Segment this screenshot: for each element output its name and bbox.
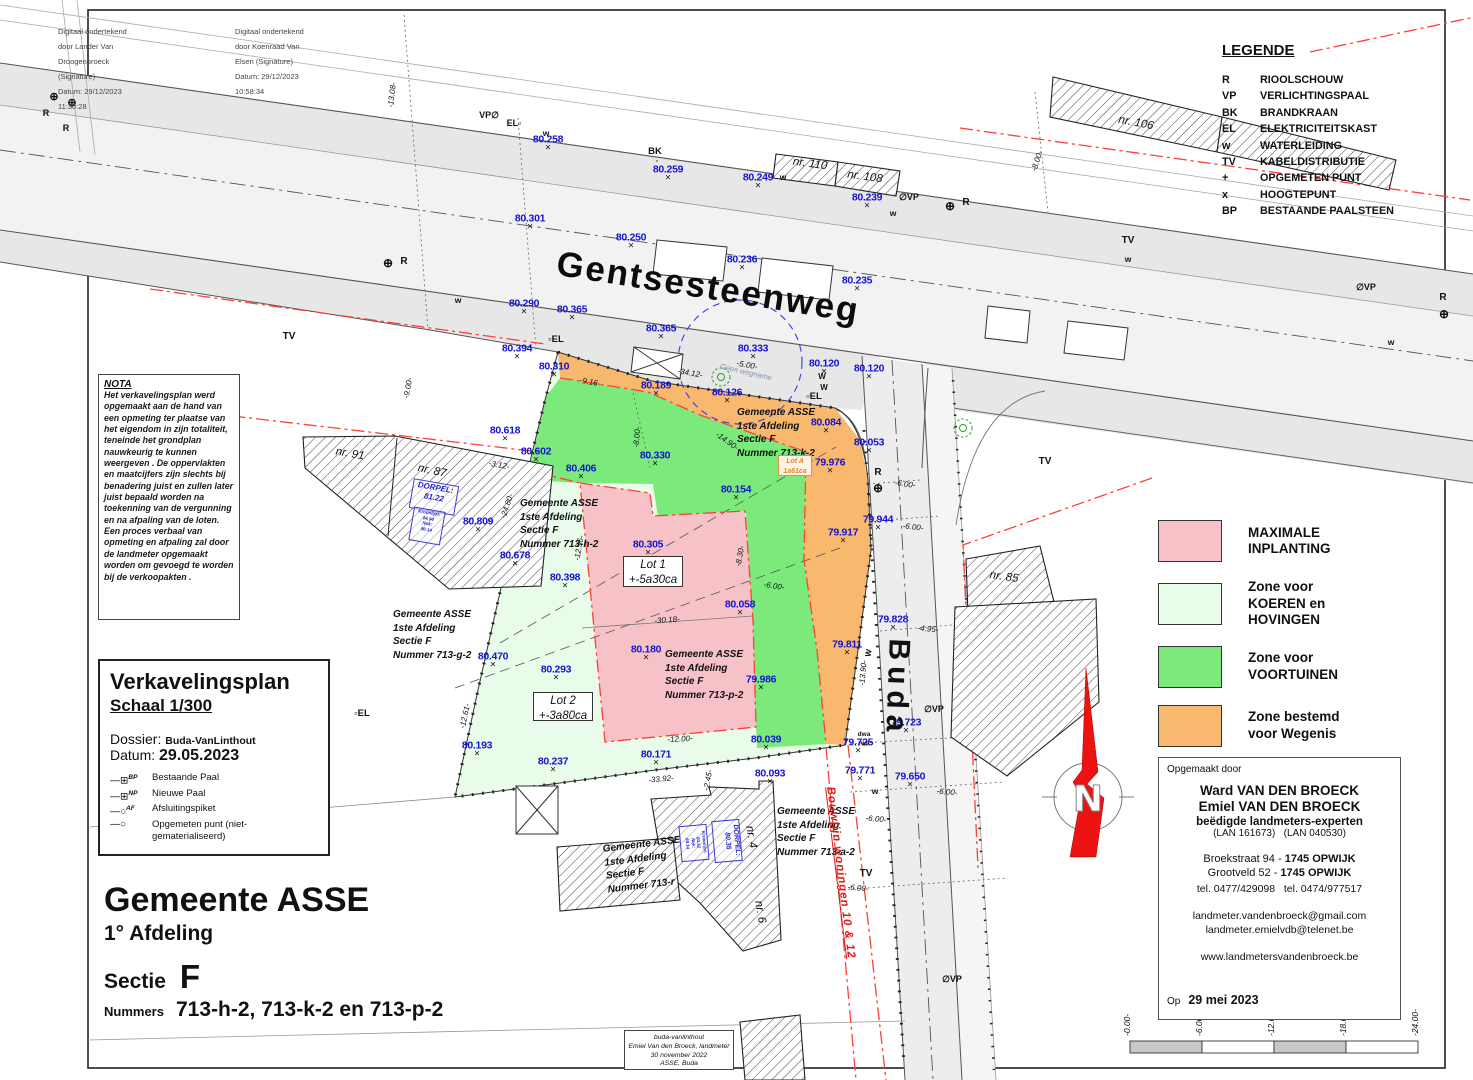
- map-symbol-EL: ▫EL: [354, 709, 370, 719]
- lightgreen-swatch: [1158, 583, 1222, 625]
- zone-legend-line: Zone voor: [1248, 579, 1325, 596]
- plan-scale: Schaal 1/300: [110, 696, 318, 716]
- legend-code: BK: [1222, 105, 1260, 121]
- legend-item: xHOOGTEPUNT: [1222, 187, 1458, 203]
- verkavelingsplan-canvas: N 80.258×80.259×80.249×80.239×80.301×80.…: [0, 0, 1473, 1080]
- zone-legend-label: MAXIMALEINPLANTING: [1248, 525, 1331, 558]
- elevation-point: 79.828×: [878, 614, 908, 633]
- elevation-point: 80.120×: [854, 363, 884, 382]
- height-x-icon: ×: [852, 203, 882, 211]
- building-number-label: nr. 87: [417, 462, 448, 480]
- map-symbol-EL: ▫EL: [548, 335, 564, 345]
- elevation-point: 80.305×: [633, 539, 663, 558]
- legend-label: VERLICHTINGSPAAL: [1260, 88, 1369, 104]
- elevation-point: 79.811×: [832, 639, 862, 658]
- elevation-point: 80.239×: [852, 192, 882, 211]
- date-value: 29 mei 2023: [1188, 993, 1258, 1007]
- signature-line: Datum: 29/12/2023: [58, 84, 208, 99]
- elevation-point: 80.406×: [566, 463, 596, 482]
- legend-item: +OPGEMETEN PUNT: [1222, 170, 1458, 186]
- map-symbol-VP: ∅VP: [942, 974, 962, 984]
- zone-legend-line: VOORTUINEN: [1248, 667, 1338, 684]
- map-symbol-w: w: [455, 295, 462, 305]
- map-symbol-w: w: [872, 786, 879, 796]
- parcel-line: Sectie F: [737, 433, 815, 447]
- zone-legend-label: Zone bestemdvoor Wegenis: [1248, 709, 1340, 742]
- signature-line: 11:30:28: [58, 99, 208, 114]
- height-x-icon: ×: [746, 685, 776, 693]
- map-symbol-R: R: [43, 108, 50, 118]
- nota-box: NOTA Het verkavelingsplan werd opgemaakt…: [98, 374, 240, 620]
- dimension-label: -9.00-: [402, 377, 414, 399]
- surveyor-lan-numbers: (LAN 161673) (LAN 040530): [1167, 828, 1392, 839]
- height-x-icon: ×: [895, 782, 925, 790]
- dimension-label: -13.90-: [857, 660, 868, 686]
- signature-line: (Signature): [58, 69, 208, 84]
- nummers-row: Nummers713-h-2, 713-k-2 en 713-p-2: [104, 998, 604, 1022]
- height-x-icon: ×: [725, 610, 755, 618]
- lotA-area: 1a61ca: [779, 467, 811, 477]
- stamp-line: buda-vanlinthout: [625, 1034, 733, 1043]
- elevation-point: 80.154×: [721, 484, 751, 503]
- parcel-label: Gemeente ASSE1ste AfdelingSectie FNummer…: [393, 608, 471, 662]
- lot2-name: Lot 2: [534, 694, 592, 709]
- dorpel-annotation-box: DORPEL:80.35: [711, 819, 743, 863]
- elevation-point: 80.249×: [743, 172, 773, 191]
- dimension-label: -12.61-: [458, 703, 472, 730]
- parcel-line: 1ste Afdeling: [393, 622, 471, 636]
- legend-code: w: [1222, 138, 1260, 154]
- lot2-area: +-3a80ca: [534, 709, 592, 724]
- zone-legend-line: MAXIMALE: [1248, 525, 1331, 542]
- surveyor-box: Opgemaakt door Ward VAN DEN BROECK Emiel…: [1158, 757, 1401, 1020]
- plan-info-box: Verkavelingsplan Schaal 1/300 Dossier: B…: [98, 659, 330, 856]
- dimension-label: -4.95-: [917, 624, 939, 635]
- dimension-label: -13.08-: [386, 82, 398, 108]
- dorpel-annotation-box: Kroonlijst:84.52Nok:89.14: [678, 824, 709, 862]
- scalebar-tick-label: -0.00-: [1122, 1014, 1132, 1036]
- nummers-label: Nummers: [104, 1004, 164, 1019]
- height-x-icon: ×: [878, 625, 908, 633]
- map-symbol-mark: ⊕: [1439, 309, 1449, 319]
- parcel-line: Gemeente ASSE: [393, 608, 471, 622]
- legend-label: KABELDISTRIBUTIE: [1260, 154, 1365, 170]
- zone-legend-item: MAXIMALEINPLANTING: [1158, 520, 1340, 562]
- map-symbol-BK: BK: [648, 147, 662, 157]
- nummers-value: 713-h-2, 713-k-2 en 713-p-2: [176, 998, 443, 1021]
- building-number-label: nr. 4: [743, 825, 759, 849]
- height-x-icon: ×: [712, 398, 742, 406]
- dimension-label: -6.00-: [865, 814, 887, 825]
- parcel-line: 1ste Afdeling: [520, 511, 598, 525]
- street-label-buda: Buda: [878, 638, 915, 738]
- map-symbol-w: w: [1125, 254, 1132, 264]
- map-symbol-W: W: [818, 372, 826, 382]
- signature-line: door Koenraad Van: [235, 39, 385, 54]
- map-symbol-R: R: [874, 468, 881, 478]
- dimension-label: -2.45-: [702, 769, 714, 791]
- height-x-icon: ×: [832, 650, 862, 658]
- parcel-line: 1ste Afdeling: [665, 662, 743, 676]
- parcel-line: Gemeente ASSE: [520, 497, 598, 511]
- parcel-label: Gemeente ASSE1ste AfdelingSectie FNummer…: [665, 648, 743, 702]
- datum-value: 29.05.2023: [159, 747, 239, 764]
- dimension-label: -33.92-: [648, 773, 674, 784]
- digital-signature-right: Digitaal ondertekenddoor Koenraad VanEls…: [235, 24, 385, 99]
- datum-label: Datum:: [110, 747, 155, 763]
- elevation-point: 79.771×: [845, 765, 875, 784]
- addr2-city: 1745 OPWIJK: [1280, 867, 1351, 879]
- dimension-label: -6.00-: [936, 787, 958, 798]
- height-x-icon: ×: [641, 391, 671, 399]
- plan-symbol-label: Nieuwe Paal: [152, 788, 302, 804]
- lotA-label: Lot A 1a61ca: [778, 455, 812, 476]
- dimension-label: -9.16-: [579, 376, 601, 388]
- map-symbol-w: w: [890, 208, 897, 218]
- map-symbol-TV: TV: [283, 332, 296, 342]
- dimension-label: -6.00-: [847, 883, 869, 894]
- parcel-line: Sectie F: [520, 524, 598, 538]
- legend-code: x: [1222, 187, 1260, 203]
- height-x-icon: ×: [463, 527, 493, 535]
- legend-item: RRIOOLSCHOUW: [1222, 72, 1458, 88]
- parcel-line: Sectie F: [665, 675, 743, 689]
- plan-symbol-row: —○AFAfsluitingspiket: [110, 803, 318, 819]
- elevation-point: 80.809×: [463, 516, 493, 535]
- map-symbol-W: W: [820, 383, 828, 393]
- addr2-street: Grootveld 52 -: [1208, 867, 1281, 879]
- map-symbol-mark: ▫: [656, 157, 658, 167]
- map-symbol-EL: EL▫: [507, 118, 522, 128]
- plan-symbol-row: —⊞BPBestaande Paal: [110, 772, 318, 788]
- signature-line: 10:58:34: [235, 84, 385, 99]
- legend-title: LEGENDE: [1222, 42, 1458, 59]
- stamp-line: 30 november 2022: [625, 1052, 733, 1061]
- legend-code: BP: [1222, 203, 1260, 219]
- dimension-label: -6.00-: [763, 580, 785, 592]
- elevation-point: 80.250×: [616, 232, 646, 251]
- sectie-label: Sectie: [104, 970, 166, 993]
- height-x-icon: ×: [743, 183, 773, 191]
- dimension-label: -24.80-: [499, 493, 515, 520]
- map-symbol-VP: ∅VP: [1356, 282, 1376, 292]
- dimension-label: -8.30-: [734, 545, 746, 567]
- parcel-line: 1ste Afdeling: [737, 420, 815, 434]
- elevation-point: 80.058×: [725, 599, 755, 618]
- legend-item: BKBRANDKRAAN: [1222, 105, 1458, 121]
- elevation-point: 80.189×: [641, 380, 671, 399]
- building-number-label: nr. 110: [792, 156, 828, 173]
- sectie-row: SectieF: [104, 958, 604, 996]
- height-x-icon: ×: [854, 448, 884, 456]
- map-symbol-w: w: [543, 128, 550, 138]
- surveyor-email-2: landmeter.emielvdb@telenet.be: [1167, 923, 1392, 937]
- map-symbol-mark: ⊕: [945, 201, 955, 211]
- map-symbol-w: w: [780, 172, 787, 182]
- building-number-label: nr. 108: [847, 169, 884, 186]
- legend-label: BESTAANDE PAALSTEEN: [1260, 203, 1394, 219]
- height-x-icon: ×: [539, 372, 569, 380]
- height-x-icon: ×: [721, 495, 751, 503]
- plan-symbol-label: Afsluitingspiket: [152, 803, 302, 819]
- map-symbol-R: R: [1439, 293, 1446, 303]
- elevation-point: 80.365×: [646, 323, 676, 342]
- title-block: Gemeente ASSE 1° Afdeling SectieF Nummer…: [104, 880, 604, 1022]
- scalebar-tick-label: -24.00-: [1410, 1009, 1420, 1036]
- legend-item: ELELEKTRICITEITSKAST: [1222, 121, 1458, 137]
- signature-line: Digitaal ondertekend: [58, 24, 208, 39]
- plan-symbol-legend: —⊞BPBestaande Paal—⊞NPNieuwe Paal—○AFAfs…: [110, 772, 318, 843]
- legend-label: WATERLEIDING: [1260, 138, 1342, 154]
- lotA-name: Lot A: [779, 457, 811, 467]
- signature-line: Digitaal ondertekend: [235, 24, 385, 39]
- parcel-line: 1ste Afdeling: [777, 819, 855, 833]
- map-symbol-rwa: rwa: [858, 739, 869, 749]
- zone-legend-label: Zone voorKOEREN enHOVINGEN: [1248, 579, 1325, 629]
- map-symbol-VP: VP∅: [479, 110, 499, 120]
- elevation-point: 80.126×: [712, 387, 742, 406]
- map-symbol-w: w: [1388, 337, 1395, 347]
- zone-legend-label: Zone voorVOORTUINEN: [1248, 650, 1338, 683]
- elevation-point: 80.237×: [538, 756, 568, 775]
- plan-symbol-row: —○Opgemeten punt (niet-gematerialiseerd): [110, 819, 318, 843]
- legend-item: BPBESTAANDE PAALSTEEN: [1222, 203, 1458, 219]
- elevation-point: 80.678×: [500, 550, 530, 569]
- height-x-icon: ×: [490, 436, 520, 444]
- digital-signature-left: Digitaal ondertekenddoor Lander VanDroog…: [58, 24, 208, 114]
- height-x-icon: ×: [521, 457, 551, 465]
- height-x-icon: ×: [640, 461, 670, 469]
- sectie-value: F: [180, 958, 200, 995]
- pink-swatch: [1158, 520, 1222, 562]
- legend-item: wWATERLEIDING: [1222, 138, 1458, 154]
- lot2-label: Lot 2 +-3a80ca: [533, 692, 593, 721]
- dossier-value: Buda-VanLinthout: [165, 735, 255, 747]
- legend-label: ELEKTRICITEITSKAST: [1260, 121, 1377, 137]
- height-x-icon: ×: [641, 760, 671, 768]
- map-symbol-TV: TV: [1039, 457, 1052, 467]
- surveyor-name-2: Emiel VAN DEN BROECK: [1167, 799, 1392, 815]
- dimension-label: -8.00-: [632, 426, 643, 448]
- legend-box: LEGENDE RRIOOLSCHOUWVPVERLICHTINGSPAALBK…: [1222, 42, 1458, 220]
- legend-item: VPVERLICHTINGSPAAL: [1222, 88, 1458, 104]
- elevation-point: 80.293×: [541, 664, 571, 683]
- plan-symbol-row: —⊞NPNieuwe Paal: [110, 788, 318, 804]
- parcel-line: Sectie F: [777, 832, 855, 846]
- height-x-icon: ×: [815, 468, 845, 476]
- map-symbol-W: W: [863, 648, 874, 657]
- parcel-line: Gemeente ASSE: [777, 805, 855, 819]
- elevation-point: 80.310×: [539, 361, 569, 380]
- zone-legend-item: Zone voorVOORTUINEN: [1158, 646, 1340, 688]
- map-symbol-VP: ∅VP: [899, 192, 919, 202]
- datum-row: Datum: 29.05.2023: [110, 747, 318, 765]
- height-x-icon: ×: [811, 428, 841, 436]
- parcel-line: Gemeente ASSE: [737, 406, 815, 420]
- building-number-label: nr. 85: [989, 569, 1019, 585]
- zones-legend: MAXIMALEINPLANTINGZone voorKOEREN enHOVI…: [1158, 520, 1340, 764]
- symbol-np-icon: —⊞NP: [110, 788, 152, 804]
- symbol-point-icon: —○: [110, 819, 152, 843]
- surveyor-website: www.landmetersvandenbroeck.be: [1167, 951, 1392, 963]
- signature-line: door Lander Van: [58, 39, 208, 54]
- map-symbol-TV: TV: [860, 869, 873, 879]
- nota-body: Het verkavelingsplan werd opgemaakt aan …: [104, 390, 234, 583]
- signature-line: Droogenbroeck: [58, 54, 208, 69]
- elevation-point: 80.398×: [550, 572, 580, 591]
- dimension-label: -6.00-: [894, 478, 916, 490]
- height-x-icon: ×: [646, 334, 676, 342]
- elevation-point: 80.301×: [515, 213, 545, 232]
- parcel-line: Nummer 713-p-2: [665, 689, 743, 703]
- stamp-box: buda-vanlinthoutEmiel Van den Broeck, la…: [624, 1030, 734, 1070]
- building-number-label: nr. 106: [1117, 114, 1154, 133]
- height-x-icon: ×: [631, 655, 661, 663]
- map-symbol-TV: TV: [1122, 236, 1135, 246]
- symbol-bp-icon: —⊞BP: [110, 772, 152, 788]
- signature-line: Elsen (Signature): [235, 54, 385, 69]
- lot1-area: +-5a30ca: [624, 573, 682, 588]
- zone-legend-item: Zone bestemdvoor Wegenis: [1158, 705, 1340, 747]
- height-x-icon: ×: [515, 224, 545, 232]
- parcel-line: Nummer 713-g-2: [393, 649, 471, 663]
- legend-item: TVKABELDISTRIBUTIE: [1222, 154, 1458, 170]
- height-x-icon: ×: [863, 525, 893, 533]
- elevation-point: 80.171×: [641, 749, 671, 768]
- elevation-point: 80.084×: [811, 417, 841, 436]
- dimension-label: -34.12-: [677, 366, 704, 379]
- dossier-label: Dossier:: [110, 731, 161, 747]
- addr1-city: 1745 OPWIJK: [1285, 853, 1356, 865]
- elevation-point: 79.917×: [828, 527, 858, 546]
- elevation-point: 80.470×: [478, 651, 508, 670]
- elevation-point: 79.944×: [863, 514, 893, 533]
- legend-label: RIOOLSCHOUW: [1260, 72, 1343, 88]
- surveyor-phones: tel. 0477/429098 tel. 0474/977517: [1167, 883, 1392, 895]
- legend-code: R: [1222, 72, 1260, 88]
- height-x-icon: ×: [616, 243, 646, 251]
- stamp-line: ASSE, Buda: [625, 1060, 733, 1069]
- dimension-label: -3.12-: [488, 459, 510, 471]
- elevation-point: 80.365×: [557, 304, 587, 323]
- height-x-icon: ×: [557, 315, 587, 323]
- map-symbol-mark: ⊕: [873, 483, 883, 493]
- parcel-line: Gemeente ASSE: [665, 648, 743, 662]
- map-symbol-EL: ▫EL: [806, 392, 822, 402]
- dorpel-annotation-box: Kroonlijst:84.94Nok:90.14: [408, 506, 445, 545]
- green-swatch: [1158, 646, 1222, 688]
- parcel-label: Gemeente ASSE1ste AfdelingSectie FNummer…: [602, 833, 686, 896]
- map-symbol-VP: ∅VP: [924, 704, 944, 714]
- stamp-line: Emiel Van den Broeck, landmeter: [625, 1043, 733, 1052]
- height-x-icon: ×: [845, 776, 875, 784]
- orange-swatch: [1158, 705, 1222, 747]
- height-x-icon: ×: [533, 145, 563, 153]
- gemeente-title: Gemeente ASSE: [104, 880, 604, 920]
- height-x-icon: ×: [502, 354, 532, 362]
- height-x-icon: ×: [500, 561, 530, 569]
- map-symbol-R: R: [63, 123, 70, 133]
- plan-title: Verkavelingsplan: [110, 669, 318, 695]
- legend-label: BRANDKRAAN: [1260, 105, 1338, 121]
- building-number-label: nr. 91: [335, 446, 366, 463]
- dimension-label: -12.00-: [667, 734, 693, 744]
- map-symbol-R: R: [962, 198, 969, 208]
- surveyor-name-1: Ward VAN DEN BROECK: [1167, 783, 1392, 799]
- elevation-point: 80.236×: [727, 254, 757, 273]
- surveyor-email-1: landmeter.vandenbroeck@gmail.com: [1167, 909, 1392, 923]
- zone-legend-line: HOVINGEN: [1248, 612, 1325, 629]
- height-x-icon: ×: [566, 474, 596, 482]
- zone-legend-line: voor Wegenis: [1248, 726, 1340, 743]
- parcel-label: Gemeente ASSE1ste AfdelingSectie FNummer…: [737, 406, 815, 460]
- legend-items: RRIOOLSCHOUWVPVERLICHTINGSPAALBKBRANDKRA…: [1222, 72, 1458, 220]
- dimension-label: -30.18-: [654, 615, 680, 626]
- elevation-point: 80.193×: [462, 740, 492, 759]
- afdeling-title: 1° Afdeling: [104, 920, 604, 947]
- plan-symbol-label: Opgemeten punt (niet-gematerialiseerd): [152, 819, 302, 843]
- elevation-point: 80.039×: [751, 734, 781, 753]
- surveyor-date-row: Op29 mei 2023: [1167, 993, 1259, 1007]
- height-x-icon: ×: [751, 745, 781, 753]
- legend-code: TV: [1222, 154, 1260, 170]
- map-symbol-mark: ⊕: [383, 258, 393, 268]
- height-x-icon: ×: [462, 751, 492, 759]
- legend-label: OPGEMETEN PUNT: [1260, 170, 1361, 186]
- surveyor-title: beëdigde landmeters-experten: [1167, 816, 1392, 828]
- elevation-point: 80.053×: [854, 437, 884, 456]
- surveyor-address-1: Broekstraat 94 - 1745 OPWIJK: [1167, 853, 1392, 867]
- dimension-label: -6.00-: [902, 521, 924, 532]
- elevation-point: 80.330×: [640, 450, 670, 469]
- surveyor-heading: Opgemaakt door: [1167, 764, 1392, 775]
- height-x-icon: ×: [653, 175, 683, 183]
- elevation-point: 80.180×: [631, 644, 661, 663]
- height-x-icon: ×: [538, 767, 568, 775]
- zone-legend-line: INPLANTING: [1248, 541, 1331, 558]
- height-x-icon: ×: [854, 374, 884, 382]
- elevation-point: 79.986×: [746, 674, 776, 693]
- signature-line: Datum: 29/12/2023: [235, 69, 385, 84]
- zone-legend-item: Zone voorKOEREN enHOVINGEN: [1158, 579, 1340, 629]
- elevation-point: 80.394×: [502, 343, 532, 362]
- parcel-line: Nummer 713-h-2: [520, 538, 598, 552]
- nota-title: NOTA: [104, 379, 234, 390]
- dimension-label: -8.00-: [1029, 150, 1044, 173]
- elevation-point: 80.290×: [509, 298, 539, 317]
- lot1-label: Lot 1 +-5a30ca: [623, 556, 683, 587]
- plan-symbol-label: Bestaande Paal: [152, 772, 302, 788]
- parcel-label: Gemeente ASSE1ste AfdelingSectie FNummer…: [520, 497, 598, 551]
- height-x-icon: ×: [541, 675, 571, 683]
- zone-legend-line: KOEREN en: [1248, 596, 1325, 613]
- date-label: Op: [1167, 996, 1180, 1007]
- height-x-icon: ×: [550, 583, 580, 591]
- elevation-point: 80.093×: [755, 768, 785, 787]
- building-number-label: nr. 6: [752, 900, 768, 924]
- height-x-icon: ×: [478, 662, 508, 670]
- symbol-af-icon: —○AF: [110, 803, 152, 819]
- map-symbol-R: R: [400, 257, 407, 267]
- parcel-line: Sectie F: [393, 635, 471, 649]
- surveyor-address-2: Grootveld 52 - 1745 OPWIJK: [1167, 867, 1392, 881]
- lot1-name: Lot 1: [624, 558, 682, 573]
- dossier-row: Dossier: Buda-VanLinthout: [110, 731, 318, 747]
- height-x-icon: ×: [828, 538, 858, 546]
- zone-legend-line: Zone voor: [1248, 650, 1338, 667]
- elevation-point: 79.650×: [895, 771, 925, 790]
- legend-code: +: [1222, 170, 1260, 186]
